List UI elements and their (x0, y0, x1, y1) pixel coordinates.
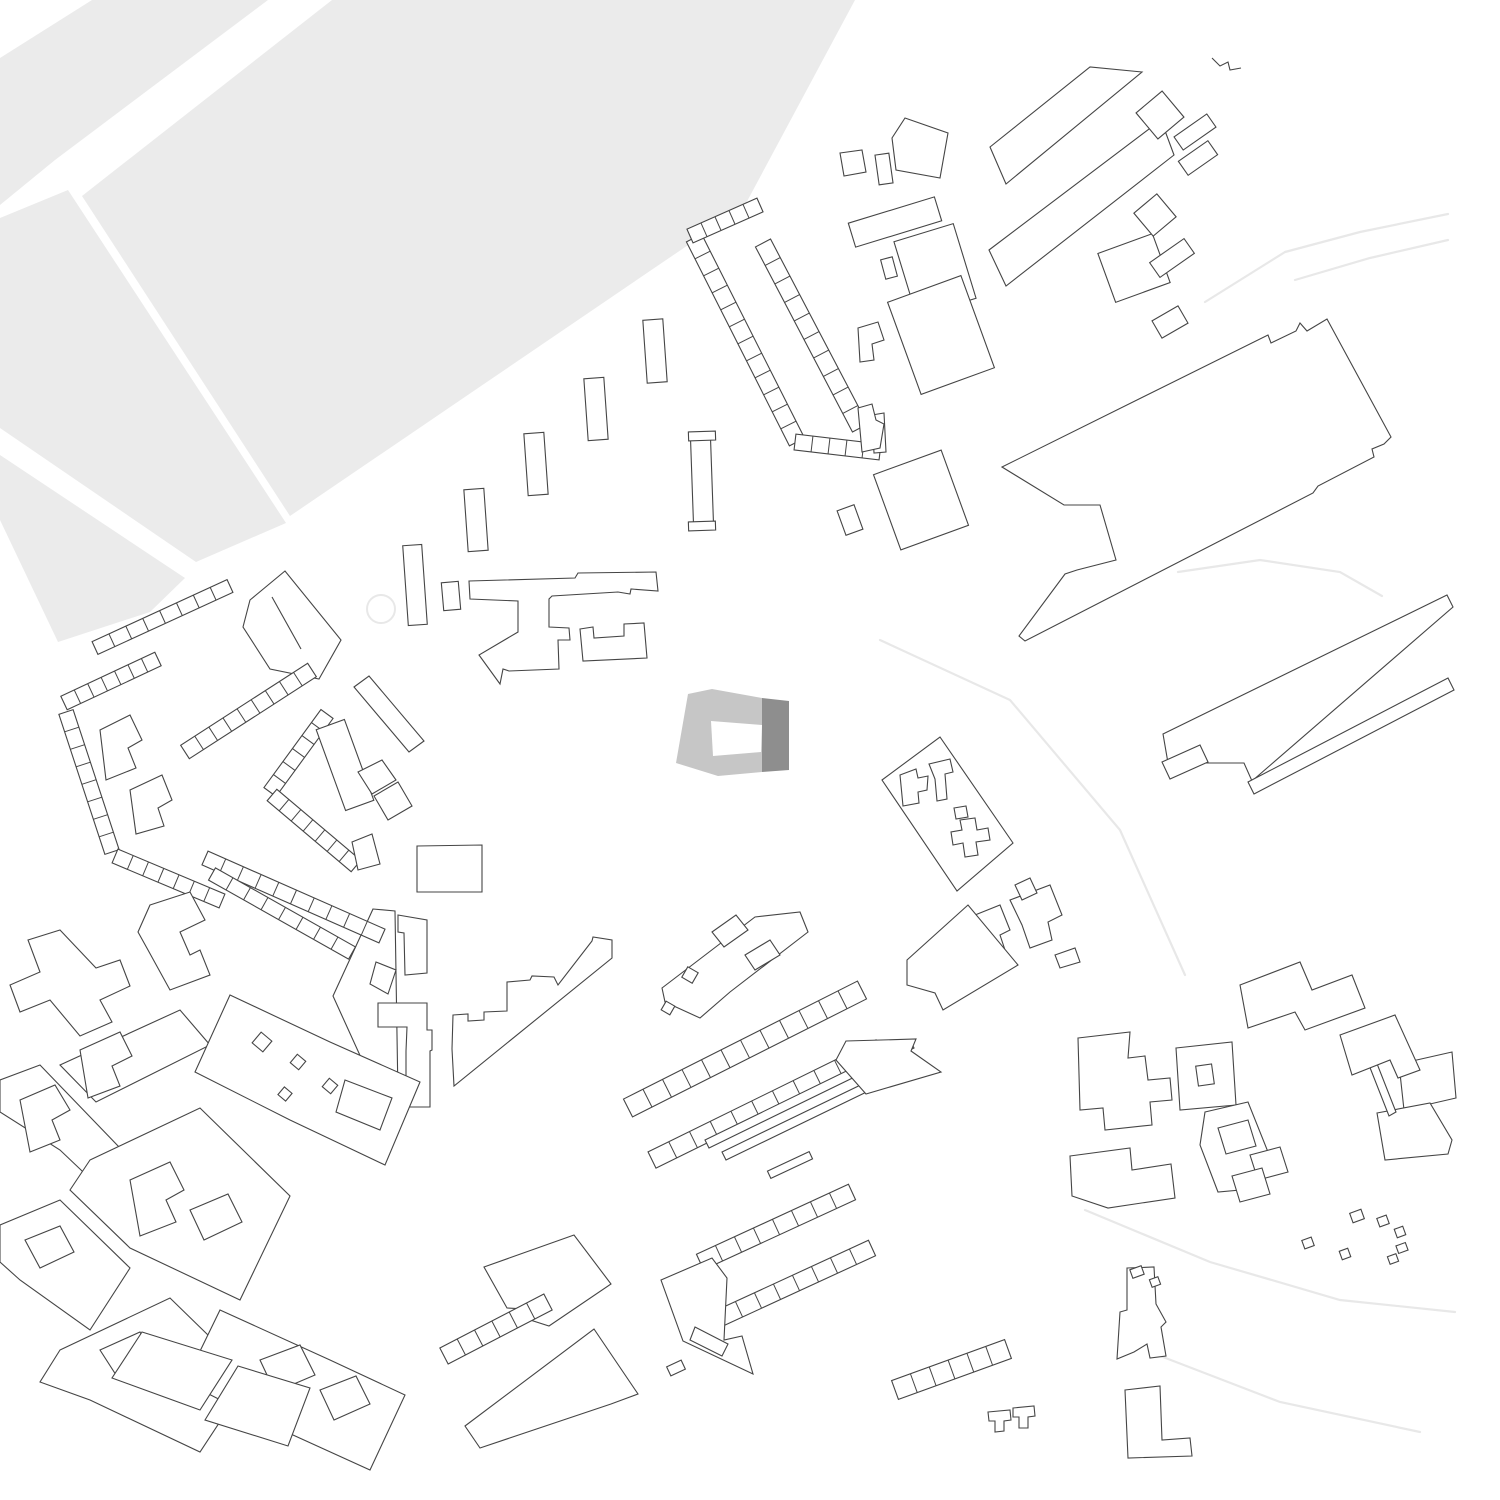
building-footprint (441, 581, 460, 610)
building-footprint (1394, 1226, 1406, 1238)
building-footprint (1340, 1015, 1420, 1078)
project-building-courtyard (711, 721, 762, 756)
building-footprint (858, 404, 884, 452)
road-line (1150, 1352, 1420, 1432)
building-footprint (1078, 1032, 1172, 1130)
building-footprint (417, 845, 482, 892)
building-footprint (1136, 91, 1184, 139)
building-footprint (988, 1410, 1011, 1432)
building-footprint (1013, 1406, 1035, 1428)
building-footprint (1396, 1243, 1408, 1254)
building-footprint (767, 1152, 812, 1179)
building-footprint (690, 434, 713, 529)
building-footprint (1002, 319, 1391, 641)
building-footprint (138, 892, 210, 990)
building-footprint (584, 377, 608, 440)
detail-line (1212, 58, 1241, 70)
building-footprint (100, 715, 142, 780)
building-footprint (837, 505, 863, 536)
building-footprint (888, 276, 995, 395)
building-footprint (524, 432, 548, 495)
building-footprint (1055, 948, 1080, 968)
building-footprint (873, 450, 968, 550)
building-footprint (1010, 885, 1062, 948)
building-footprint (243, 571, 341, 679)
building-footprint (954, 806, 968, 819)
rowhouse-strip (61, 652, 161, 710)
building-footprint (1377, 1215, 1389, 1227)
building-footprint (892, 118, 948, 178)
building-footprint (1134, 194, 1176, 236)
building-footprint (881, 257, 898, 279)
building-footprint (1070, 1148, 1175, 1208)
site-plan (0, 0, 1500, 1500)
building-footprint (1387, 1254, 1398, 1265)
building-footprint (316, 719, 374, 810)
building-footprint (130, 775, 172, 834)
building-footprint (643, 319, 667, 383)
building-footprint (354, 676, 424, 752)
site-plan-map (0, 0, 1500, 1500)
building-footprint (875, 153, 893, 185)
roundabout-circle (367, 595, 395, 623)
building-footprint (688, 431, 715, 441)
building-footprint (858, 322, 884, 362)
building-footprint (464, 488, 488, 551)
building-footprint (667, 1360, 686, 1376)
road-line (1178, 560, 1382, 596)
building-footprint (1240, 962, 1365, 1030)
building-footprint (840, 150, 866, 176)
building-footprint (1125, 1386, 1192, 1458)
building-footprint (836, 1039, 941, 1094)
building-footprint (688, 521, 715, 531)
building-footprint (580, 623, 647, 661)
building-footprint (398, 915, 427, 975)
building-footprint (1302, 1237, 1314, 1249)
road-line (1295, 240, 1448, 280)
building-footprint (1152, 306, 1188, 338)
building-footprint (1339, 1248, 1351, 1260)
building-footprint (465, 1329, 638, 1448)
project-building-wing (762, 698, 789, 772)
building-footprint (452, 937, 612, 1086)
building-footprint (1196, 1064, 1215, 1086)
road-line (1205, 252, 1285, 302)
building-footprint (1350, 1209, 1365, 1223)
building-footprint (403, 544, 428, 625)
highlighted-project-building (676, 689, 789, 776)
building-footprint (10, 930, 130, 1036)
